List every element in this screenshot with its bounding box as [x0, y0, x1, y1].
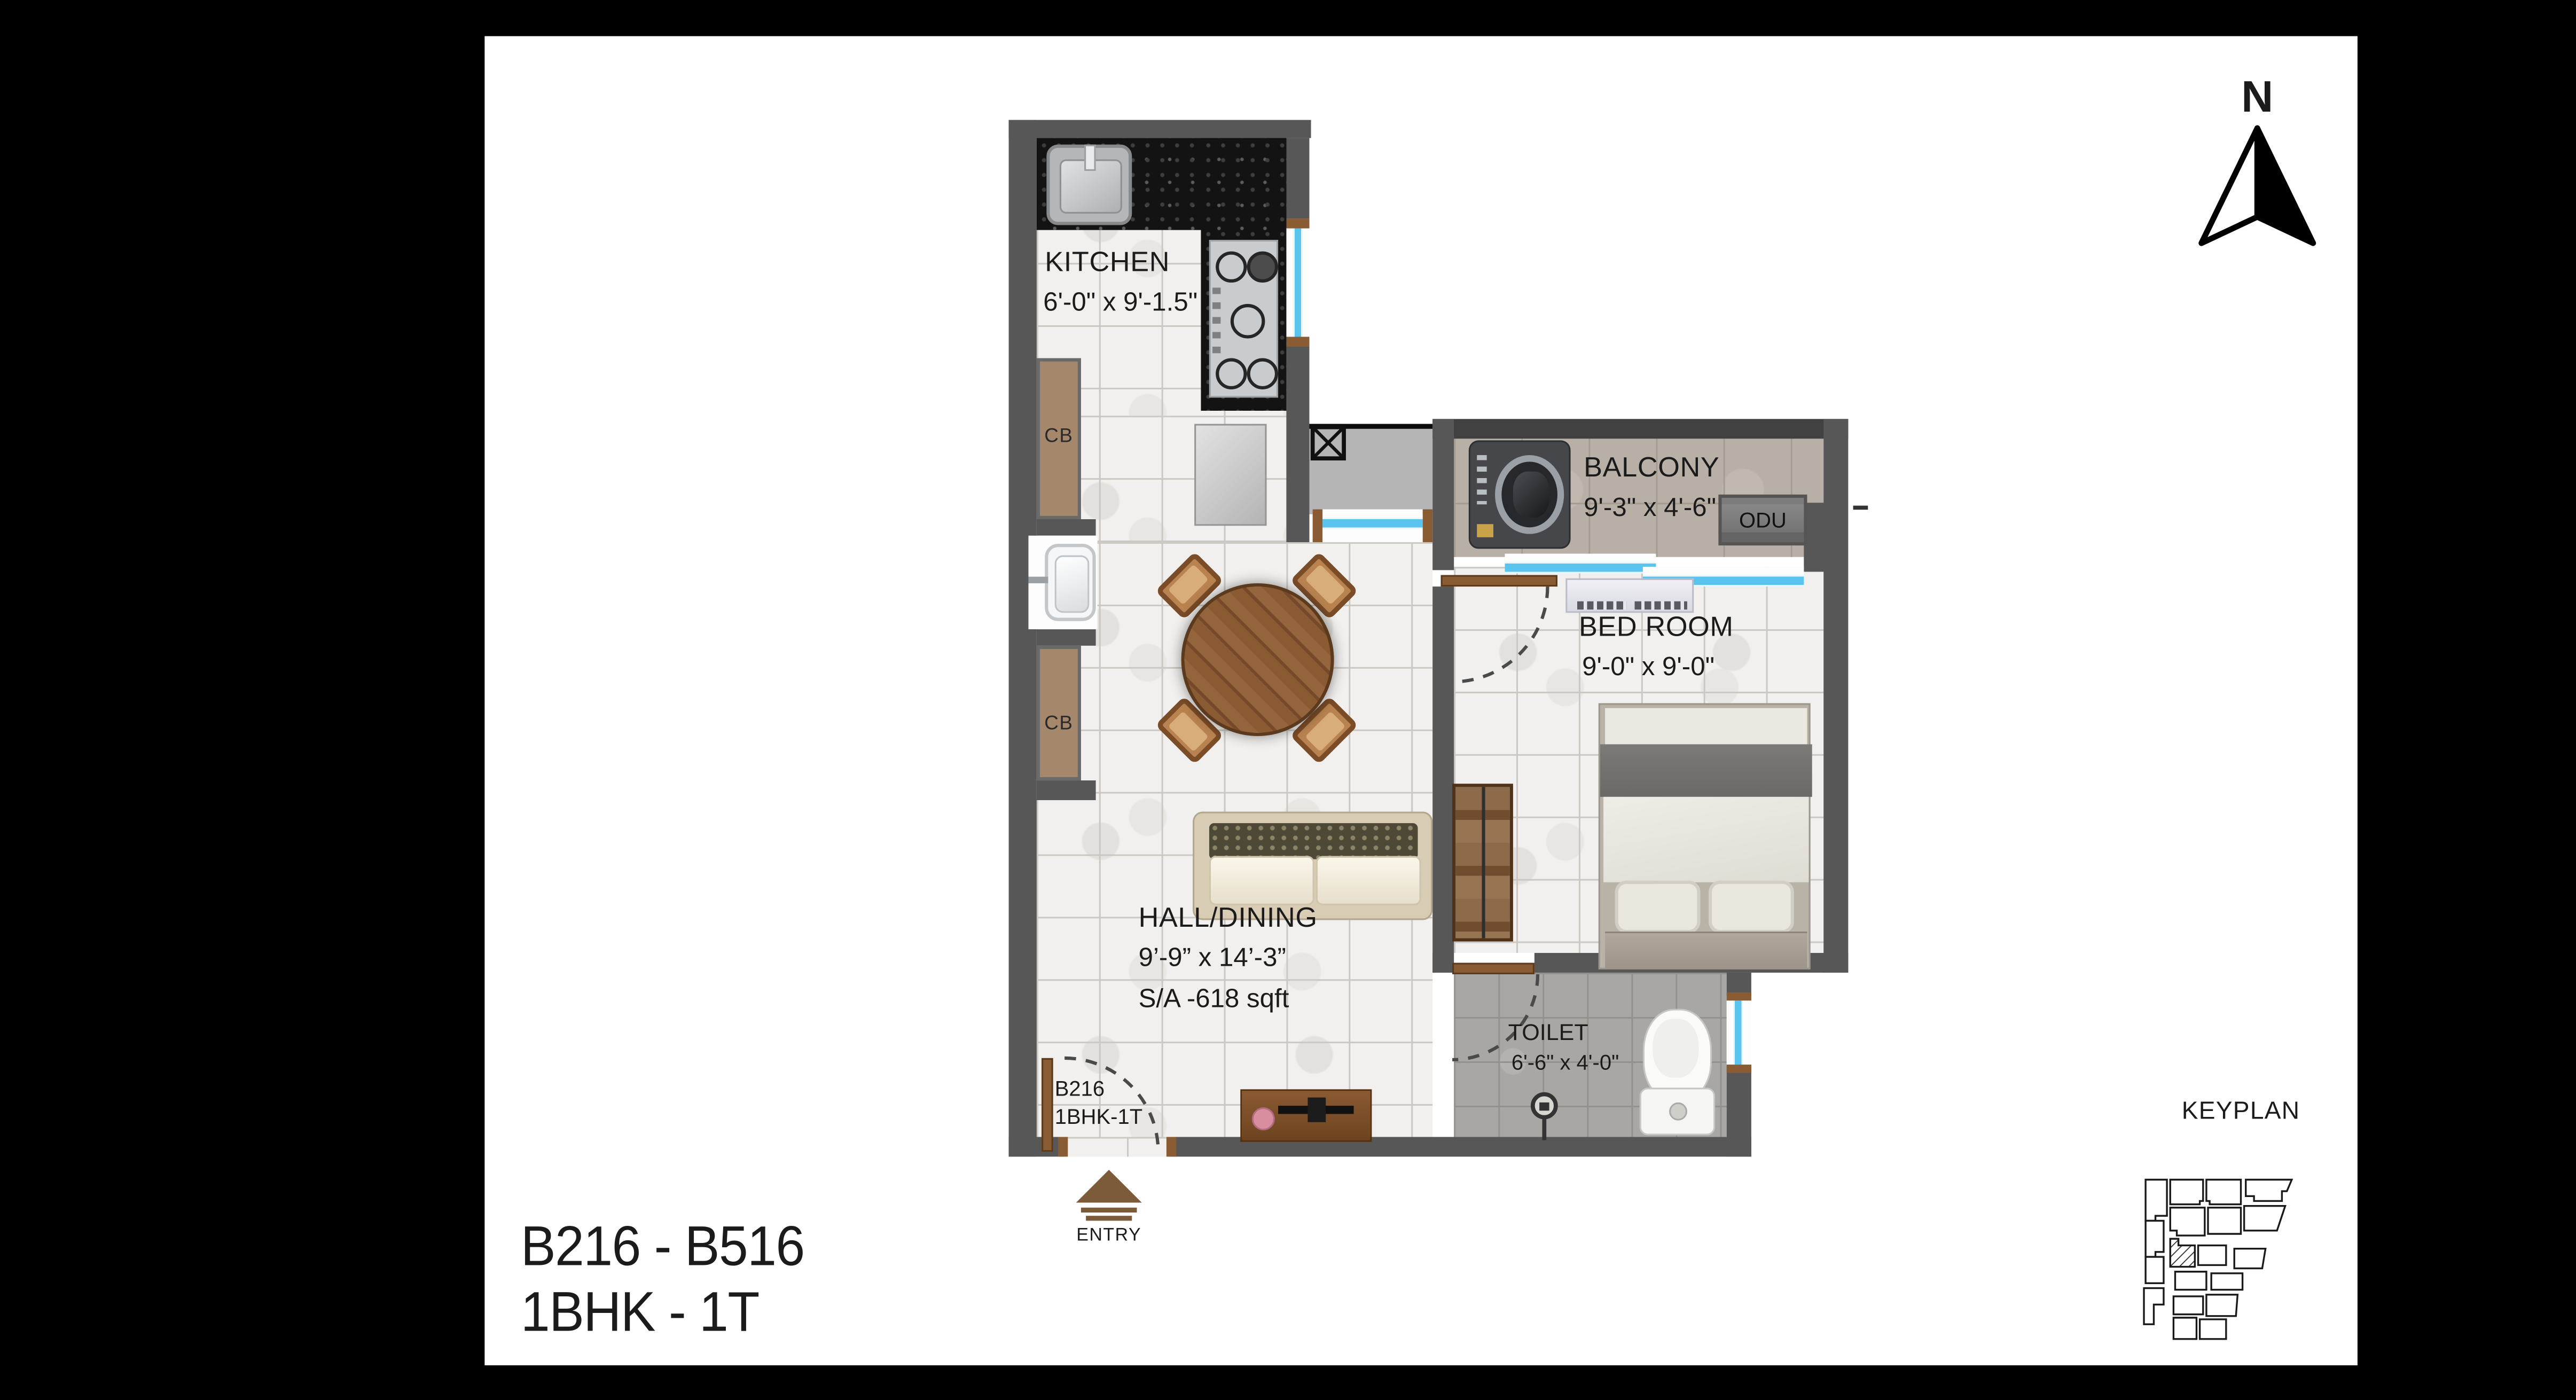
keyplan-diagram: [2126, 1133, 2356, 1355]
north-arrow-icon: [2188, 118, 2326, 253]
entry-label: ENTRY: [1068, 1226, 1150, 1246]
duct-x-icon: [1313, 427, 1344, 458]
balcony-name: BALCONY: [1584, 452, 1719, 485]
toilet-dims: 6'-6" x 4'-0": [1512, 1050, 1619, 1075]
bedroom-name: BED ROOM: [1579, 611, 1734, 644]
toilet-door-arc: [1452, 974, 1538, 1060]
hall-area: S/A -618 sqft: [1139, 986, 1289, 1015]
north-label: N: [2188, 72, 2326, 123]
entry-arrow-icon: [1076, 1170, 1142, 1203]
toilet-name: TOILET: [1508, 1019, 1588, 1045]
entry-arrow-bar-2: [1086, 1216, 1132, 1221]
hall-name: HALL/DINING: [1139, 902, 1318, 935]
hall-dims: 9’-9” x 14’-3”: [1139, 945, 1286, 974]
kitchen-name: KITCHEN: [1045, 246, 1170, 279]
unit-tag-line1: B216: [1055, 1076, 1105, 1101]
unit-tag-line2: 1BHK-1T: [1055, 1104, 1142, 1129]
plan-title-line1: B216 - B516: [521, 1216, 804, 1280]
kitchen-dims: 6'-0" x 9'-1.5": [1043, 289, 1197, 318]
keyplan-label: KEYPLAN: [2126, 1098, 2356, 1125]
balcony-dims: 9'-3" x 4'-6": [1584, 495, 1716, 524]
plan-title-line2: 1BHK - 1T: [521, 1281, 759, 1346]
page-canvas: CB CB ODU: [0, 0, 2576, 1400]
bedroom-door-arc: [1452, 586, 1547, 682]
entry-arrow-bar-1: [1081, 1208, 1137, 1213]
shower-drain-icon: [1533, 1094, 1556, 1140]
bedroom-dims: 9'-0" x 9'-0": [1582, 654, 1714, 683]
keyplan-highlighted-unit: [2170, 1239, 2195, 1266]
